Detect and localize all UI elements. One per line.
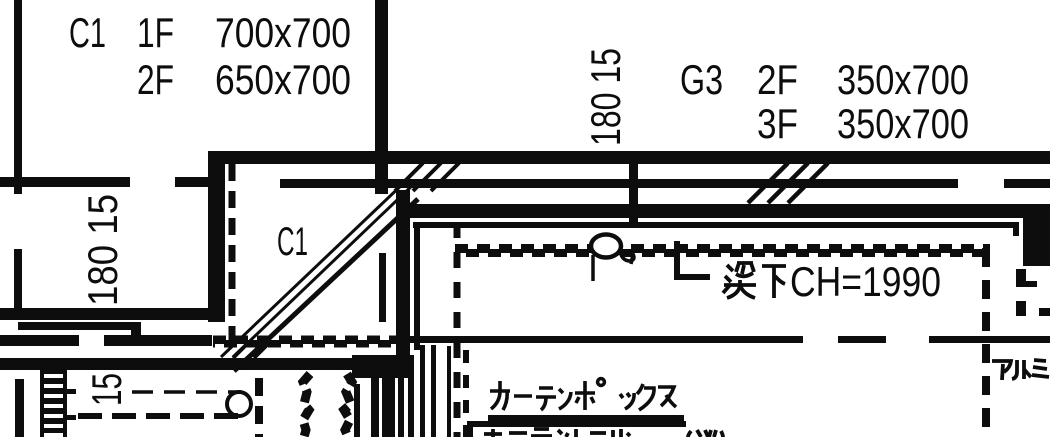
svg-text:2F: 2F <box>137 56 174 103</box>
svg-text:15: 15 <box>83 373 130 406</box>
svg-text:CH=1990: CH=1990 <box>790 258 941 305</box>
svg-text:G3: G3 <box>680 56 723 103</box>
svg-text:350x700: 350x700 <box>837 100 969 147</box>
svg-text:180 15: 180 15 <box>79 194 126 306</box>
svg-text:2F: 2F <box>757 56 798 103</box>
svg-text:1F: 1F <box>137 9 174 56</box>
svg-text:650x700: 650x700 <box>215 56 351 103</box>
svg-text:700x700: 700x700 <box>215 9 351 56</box>
svg-text:C1: C1 <box>69 9 106 56</box>
svg-text:350x700: 350x700 <box>837 56 969 103</box>
svg-text:C1: C1 <box>277 220 308 264</box>
svg-text:180 15: 180 15 <box>582 48 629 146</box>
svg-text:3F: 3F <box>757 100 798 147</box>
